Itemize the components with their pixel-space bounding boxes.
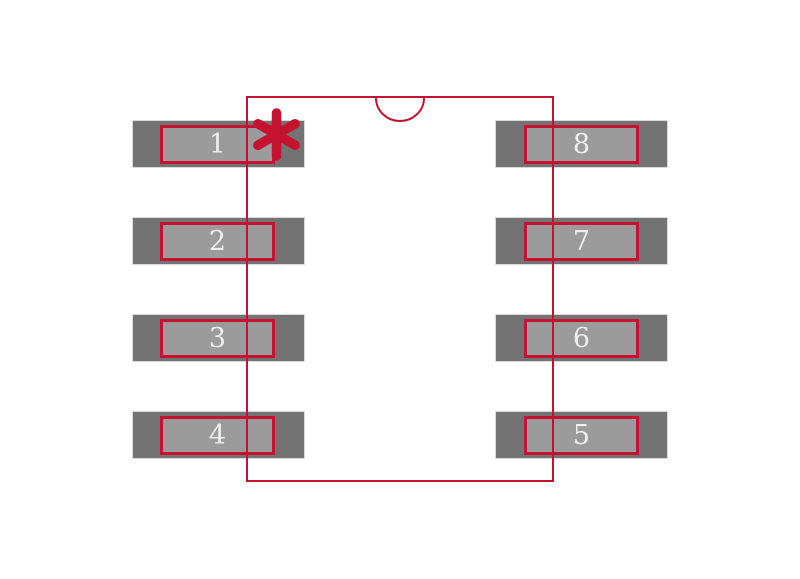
footprint-canvas: 1 2 3 4 8 7 6 5 xyxy=(0,0,800,579)
pad-number: 3 xyxy=(209,325,226,352)
pad-7: 7 xyxy=(496,218,667,264)
pad-copper-area: 5 xyxy=(524,416,639,455)
pad-copper-area: 2 xyxy=(160,222,275,261)
pad-number: 4 xyxy=(209,422,226,449)
pad-copper-area: 7 xyxy=(524,222,639,261)
pad-number: 2 xyxy=(209,228,226,255)
pad-copper-area: 8 xyxy=(524,125,639,164)
pad-copper-area: 3 xyxy=(160,319,275,358)
pad-copper-area: 1 xyxy=(160,125,275,164)
pad-number: 1 xyxy=(209,131,226,158)
pad-copper-area: 4 xyxy=(160,416,275,455)
pad-copper-area: 6 xyxy=(524,319,639,358)
pad-8: 8 xyxy=(496,121,667,167)
pad-5: 5 xyxy=(496,412,667,458)
pad-number: 7 xyxy=(573,228,590,255)
pad-3: 3 xyxy=(133,315,304,361)
pad-2: 2 xyxy=(133,218,304,264)
pad-number: 8 xyxy=(573,131,590,158)
pad-number: 5 xyxy=(573,422,590,449)
pad-6: 6 xyxy=(496,315,667,361)
pad-4: 4 xyxy=(133,412,304,458)
pad-1: 1 xyxy=(133,121,304,167)
pad-number: 6 xyxy=(573,325,590,352)
pads-layer: 1 2 3 4 8 7 6 5 xyxy=(0,0,800,579)
